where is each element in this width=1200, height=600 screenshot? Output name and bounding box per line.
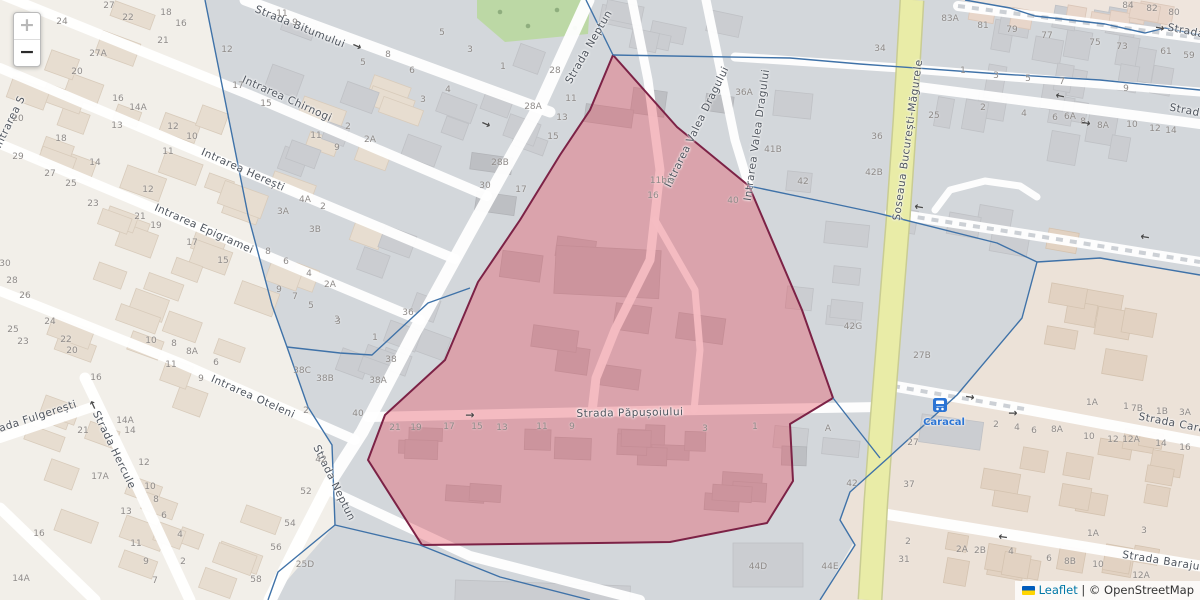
zoom-in-button[interactable]: +	[14, 13, 40, 40]
bus-stop-icon	[933, 398, 947, 412]
map-canvas	[0, 0, 1200, 600]
attribution-bar: Leaflet | © OpenStreetMap	[1015, 581, 1200, 600]
ukraine-flag-icon	[1022, 586, 1035, 595]
map-viewport[interactable]: Strada BitumuluiIntrarea ChirnogiIntrare…	[0, 0, 1200, 600]
attribution-separator: |	[1078, 583, 1089, 597]
zoom-control: + −	[13, 12, 41, 67]
openstreetmap-link[interactable]: © OpenStreetMap	[1089, 583, 1194, 597]
zoom-out-button[interactable]: −	[14, 40, 40, 66]
leaflet-link[interactable]: Leaflet	[1039, 583, 1078, 597]
